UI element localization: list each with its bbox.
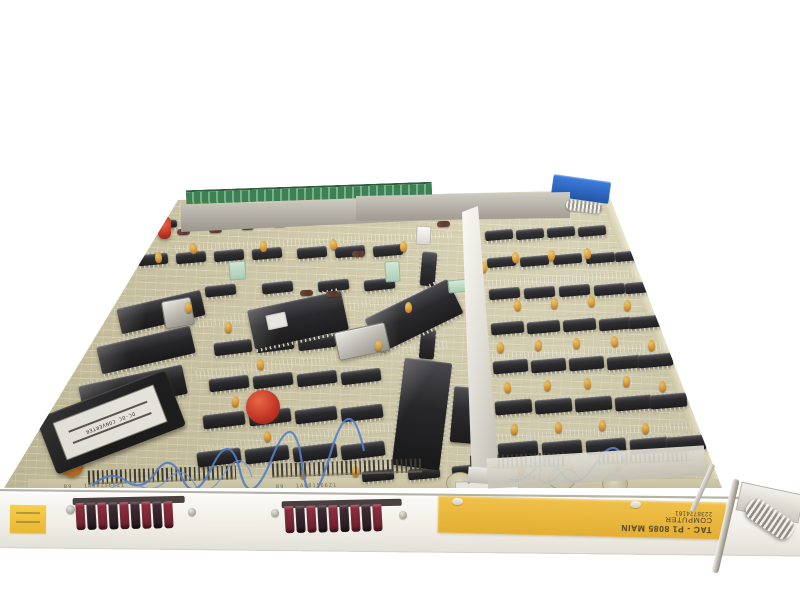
tantalum-capacitor xyxy=(514,300,522,311)
dip-chip xyxy=(559,284,591,298)
dip-chip xyxy=(563,318,597,333)
dip-chip xyxy=(420,251,438,286)
connector-tooth xyxy=(75,503,85,530)
tantalum-capacitor xyxy=(610,336,618,348)
disc-capacitor-orange xyxy=(61,455,83,477)
connector-tooth xyxy=(108,502,118,529)
connector-tooth xyxy=(372,504,382,531)
tantalum-capacitor xyxy=(184,302,192,314)
dip-chip xyxy=(202,410,245,429)
connector-tooth xyxy=(284,506,294,533)
pin-header xyxy=(272,458,422,477)
tantalum-capacitor xyxy=(659,381,667,392)
tantalum-capacitor xyxy=(374,340,382,352)
eprom-chip xyxy=(247,290,349,349)
tantalum-capacitor xyxy=(555,422,562,433)
tantalum-capacitor xyxy=(584,378,592,389)
dip-chip xyxy=(485,229,514,241)
dip-chip xyxy=(196,447,242,467)
tantalum-capacitor xyxy=(405,302,412,313)
dip-chip xyxy=(494,398,532,415)
dip-chip xyxy=(339,332,378,350)
tantalum-capacitor xyxy=(573,338,580,349)
connector-tooth xyxy=(306,505,316,532)
mint-capacitor xyxy=(384,261,400,283)
dip-chip xyxy=(208,375,249,393)
dip-chip xyxy=(553,253,583,265)
dip-chip xyxy=(419,289,437,326)
tantalum-capacitor xyxy=(504,382,512,394)
panel-screw xyxy=(66,505,75,514)
trace-bus xyxy=(492,342,667,362)
dip-chip xyxy=(408,467,441,481)
dip-chip xyxy=(586,251,616,263)
board-bottom-edge xyxy=(28,479,728,491)
disc-capacitor-red xyxy=(246,390,280,424)
dip-chip xyxy=(364,277,396,291)
dip-chip xyxy=(252,372,293,390)
dip-chip xyxy=(255,336,294,354)
connector-tooth xyxy=(350,504,360,531)
tantalum-capacitor xyxy=(512,252,520,264)
dip-chip xyxy=(373,244,404,258)
photo-of-circuit-board: B9 1A6B1566Z1 B9 1A6B1566Z1 C51 C36 + PE… xyxy=(0,0,800,600)
tantalum-capacitor xyxy=(257,359,265,370)
dip-chip xyxy=(414,418,436,460)
dip-chip xyxy=(649,392,687,409)
disc-capacitor-red xyxy=(158,216,171,239)
metal-can-module xyxy=(161,297,195,330)
rom-chip xyxy=(364,279,463,353)
connector-tooth xyxy=(328,505,338,532)
connector-tooth xyxy=(361,504,371,531)
dip-chip xyxy=(294,405,337,424)
dip-chip xyxy=(629,315,663,330)
dip-chip xyxy=(487,256,517,268)
connector-teeth xyxy=(76,501,174,530)
dip-chip xyxy=(625,281,657,295)
dip-socket xyxy=(416,226,432,246)
dip-chip xyxy=(340,403,383,422)
tantalum-capacitor xyxy=(300,468,308,480)
eprom-chip xyxy=(78,364,188,415)
dip-chip xyxy=(419,328,437,359)
dip-chip xyxy=(262,280,294,294)
dip-chip xyxy=(594,282,626,296)
connector-tooth xyxy=(163,501,173,528)
dip-chip xyxy=(578,224,607,236)
panel-screw xyxy=(399,511,407,519)
dip-chip xyxy=(297,246,328,260)
panel-screw xyxy=(271,509,279,517)
panel-screw xyxy=(188,508,196,516)
silkscreen-c36: C36 + xyxy=(118,435,138,452)
tantalum-capacitor xyxy=(599,420,607,432)
trace-bus xyxy=(498,421,693,443)
diode xyxy=(437,221,450,228)
tantalum-capacitor xyxy=(648,340,655,351)
trace-bus xyxy=(195,339,449,379)
tantalum-capacitor xyxy=(330,239,338,251)
tantalum-capacitor xyxy=(534,340,542,352)
dip-chip xyxy=(214,249,245,263)
board-left-edge xyxy=(0,194,178,489)
dip-chip xyxy=(340,368,381,386)
tantalum-capacitor xyxy=(551,298,559,309)
dip-chip xyxy=(599,316,633,331)
dip-chip xyxy=(614,394,652,411)
dip-chip xyxy=(296,370,337,388)
dip-chip xyxy=(213,339,252,357)
card-edge-connector-right xyxy=(285,499,400,541)
tantalum-capacitor xyxy=(511,424,519,435)
eprom-chip xyxy=(96,326,196,375)
diode xyxy=(300,290,313,297)
dip-chip xyxy=(362,469,395,483)
connector-tooth xyxy=(130,502,140,529)
dip-chip xyxy=(205,283,237,297)
edge-code-left: 1A6B1566Z1 xyxy=(84,483,125,490)
dip-chip xyxy=(248,407,291,426)
dip-chip xyxy=(292,442,338,462)
eprom-label-sticker xyxy=(266,311,289,330)
card-edge-connector-left xyxy=(76,496,183,538)
edge-code-b9-right: B9 xyxy=(276,484,284,490)
tantalum-capacitor xyxy=(548,250,555,261)
dip-chip xyxy=(491,321,525,336)
connector-tooth xyxy=(152,501,162,528)
dip-chip xyxy=(531,357,567,373)
tantalum-capacitor xyxy=(642,423,649,434)
disc-capacitor-red xyxy=(116,401,136,421)
panel-rivet xyxy=(452,498,463,505)
dip-chip xyxy=(297,334,336,352)
dip-chip xyxy=(574,395,612,412)
mint-capacitor xyxy=(228,260,246,280)
connector-teeth xyxy=(285,504,383,533)
dip-chip xyxy=(493,358,529,374)
dip-chip xyxy=(340,440,386,460)
connector-tooth xyxy=(86,503,96,530)
tantalum-capacitor xyxy=(260,241,267,252)
dip-chip xyxy=(516,227,545,239)
tantalum-capacitor xyxy=(497,342,504,353)
dip-chip xyxy=(534,397,572,414)
dcdc-label-text: DC-DC CONVERTER xyxy=(84,410,135,434)
dip-chip xyxy=(524,285,556,299)
dip-chip xyxy=(176,251,207,265)
trace-bus xyxy=(190,290,439,329)
dip-chip xyxy=(252,247,283,261)
dip-chip xyxy=(318,278,350,292)
pin-header xyxy=(88,465,236,484)
tantalum-capacitor xyxy=(264,431,271,442)
tantalum-capacitor xyxy=(623,376,631,387)
dip-chip xyxy=(244,444,290,464)
connector-tooth xyxy=(295,506,305,533)
tantalum-capacitor xyxy=(624,300,632,312)
dip-chip xyxy=(607,354,643,370)
connector-tooth xyxy=(97,502,107,529)
dcdc-converter-module: DC-DC CONVERTER xyxy=(36,369,186,474)
diode xyxy=(352,251,365,258)
dip-chip xyxy=(155,219,177,228)
tantalum-capacitor xyxy=(155,252,163,263)
dip-chip xyxy=(569,355,605,371)
tantalum-capacitor xyxy=(189,243,197,255)
dip-chip xyxy=(335,245,366,259)
dcdc-label: DC-DC CONVERTER xyxy=(52,384,167,460)
tantalum-capacitor xyxy=(232,396,240,407)
dip-chip xyxy=(547,226,576,238)
diode xyxy=(326,291,339,298)
edge-code-right: 1A6B1566Z1 xyxy=(296,483,337,490)
silkscreen-c51: C51 xyxy=(101,423,115,436)
cpu-chip xyxy=(392,357,453,470)
dip-chip xyxy=(638,352,674,368)
tantalum-capacitor xyxy=(400,241,407,252)
tantalum-capacitor xyxy=(588,296,595,307)
eprom-chip xyxy=(116,290,206,335)
dip-chip xyxy=(520,254,550,266)
tantalum-capacitor xyxy=(584,248,592,259)
dip-chip xyxy=(489,287,521,301)
crystal-oscillator xyxy=(334,322,391,361)
trace-bus xyxy=(175,231,455,253)
trace-bus xyxy=(488,270,638,288)
connector-tooth xyxy=(119,502,129,529)
dip-chip xyxy=(138,253,169,267)
connector-tooth xyxy=(317,505,327,532)
panel-id-label-text: TAC - P1 8085 MAIN COMPUTER 2238724161 xyxy=(438,495,727,539)
trace-bus xyxy=(200,415,449,454)
connector-tooth xyxy=(339,505,349,532)
tantalum-capacitor xyxy=(225,322,233,333)
panel-id-label: TAC - P1 8085 MAIN COMPUTER 2238724161 xyxy=(438,495,727,539)
panel-yellow-sticker xyxy=(10,505,46,533)
panel-rivet xyxy=(630,501,641,508)
dip-chip xyxy=(615,250,645,262)
tantalum-capacitor xyxy=(352,466,359,477)
dip-chip xyxy=(527,319,561,334)
connector-tooth xyxy=(141,501,151,528)
tantalum-capacitor xyxy=(544,380,551,391)
